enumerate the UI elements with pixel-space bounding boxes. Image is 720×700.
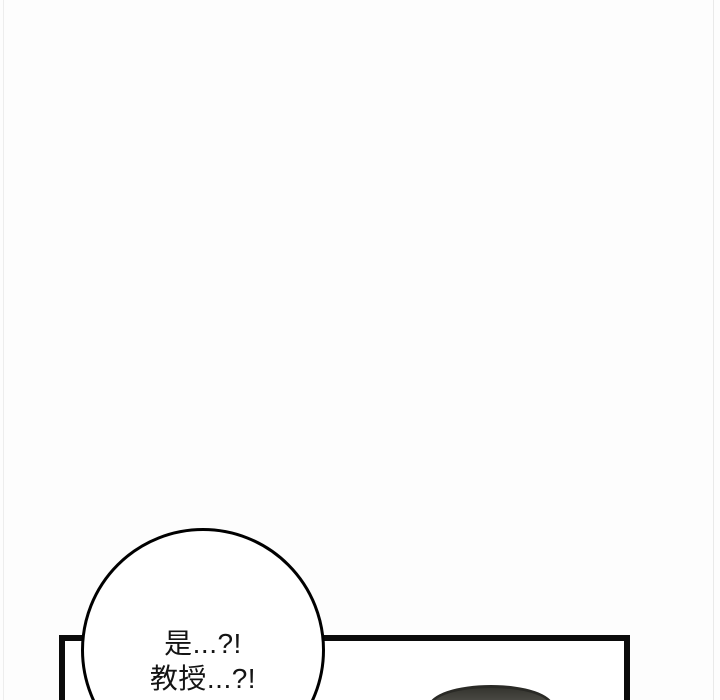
speech-bubble-line-2: 教授...?! — [83, 661, 323, 696]
page-left-edge-line — [3, 0, 4, 700]
speech-bubble-line-1: 是...?! — [83, 626, 323, 661]
speech-bubble-text: 是...?! 教授...?! — [83, 626, 323, 696]
page-right-edge-line — [713, 0, 714, 700]
comic-page[interactable]: 是...?! 教授...?! — [0, 0, 720, 700]
